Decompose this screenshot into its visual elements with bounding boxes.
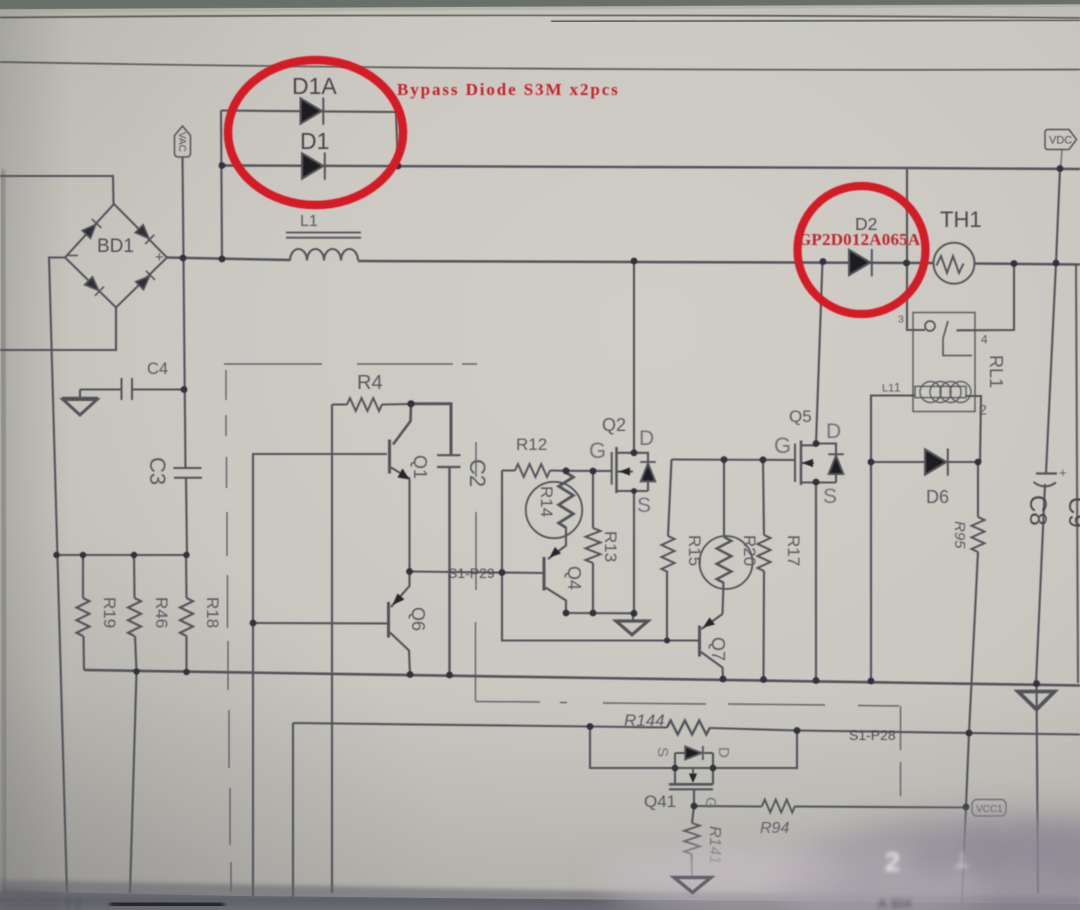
svg-text:Q2: Q2 — [602, 415, 626, 435]
svg-text:4: 4 — [981, 333, 988, 347]
svg-text:R95: R95 — [951, 521, 968, 549]
svg-text:L1: L1 — [882, 383, 894, 395]
svg-text:G: G — [774, 433, 791, 458]
svg-text:BD1: BD1 — [97, 236, 134, 257]
svg-text:R14: R14 — [537, 486, 556, 517]
svg-text:D6: D6 — [926, 487, 949, 507]
svg-text:C4: C4 — [147, 360, 168, 378]
svg-text:D: D — [715, 747, 732, 758]
svg-text:S: S — [637, 494, 651, 517]
svg-text:R144: R144 — [624, 711, 665, 730]
svg-text:R19: R19 — [100, 597, 119, 628]
svg-text:C2: C2 — [465, 459, 490, 487]
svg-text:VAC: VAC — [176, 132, 187, 152]
svg-text:R94: R94 — [760, 820, 789, 837]
svg-text:D: D — [639, 427, 654, 450]
svg-text:C9: C9 — [1063, 497, 1080, 528]
svg-text:R4: R4 — [357, 372, 383, 394]
svg-text:A 304: A 304 — [878, 896, 911, 910]
svg-text:+: + — [1059, 465, 1067, 480]
svg-text:S1-P29: S1-P29 — [448, 565, 495, 581]
svg-text:2: 2 — [979, 402, 987, 418]
svg-text:VDC: VDC — [1049, 135, 1072, 147]
svg-text:R17: R17 — [784, 535, 803, 566]
svg-text:S: S — [654, 747, 671, 757]
svg-text:TH1: TH1 — [940, 207, 982, 232]
svg-text:R12: R12 — [516, 435, 547, 454]
svg-text:C8: C8 — [1024, 495, 1051, 526]
svg-text:R13: R13 — [601, 531, 620, 562]
svg-text:L1: L1 — [300, 213, 318, 230]
svg-text:R15: R15 — [685, 535, 704, 566]
svg-text:S: S — [823, 485, 837, 508]
svg-text:S1-P28: S1-P28 — [849, 727, 896, 743]
svg-text:G: G — [589, 438, 606, 463]
svg-text:3: 3 — [898, 314, 904, 326]
svg-text:Bypass Diode S3M x2pcs: Bypass Diode S3M x2pcs — [397, 80, 620, 99]
svg-text:Q41: Q41 — [644, 792, 676, 811]
svg-text:RL1: RL1 — [986, 355, 1006, 388]
svg-text:Q6: Q6 — [408, 607, 428, 631]
svg-text:Q7: Q7 — [708, 637, 728, 661]
svg-text:D: D — [826, 420, 841, 443]
svg-text:R18: R18 — [203, 597, 222, 628]
svg-text:1: 1 — [894, 381, 901, 395]
svg-text:+: + — [155, 249, 164, 266]
svg-text:D1: D1 — [300, 128, 329, 154]
svg-text:2: 2 — [885, 847, 900, 877]
svg-text:Q5: Q5 — [789, 407, 812, 426]
svg-text:C3: C3 — [145, 457, 170, 485]
svg-text:Q4: Q4 — [564, 566, 584, 590]
svg-text:GP2D012A065A: GP2D012A065A — [798, 230, 921, 249]
svg-text:G: G — [702, 797, 719, 809]
svg-text:R46: R46 — [152, 597, 171, 628]
svg-text:Q1: Q1 — [410, 455, 430, 479]
svg-text:D1A: D1A — [292, 73, 337, 99]
svg-text:R20: R20 — [740, 535, 759, 566]
